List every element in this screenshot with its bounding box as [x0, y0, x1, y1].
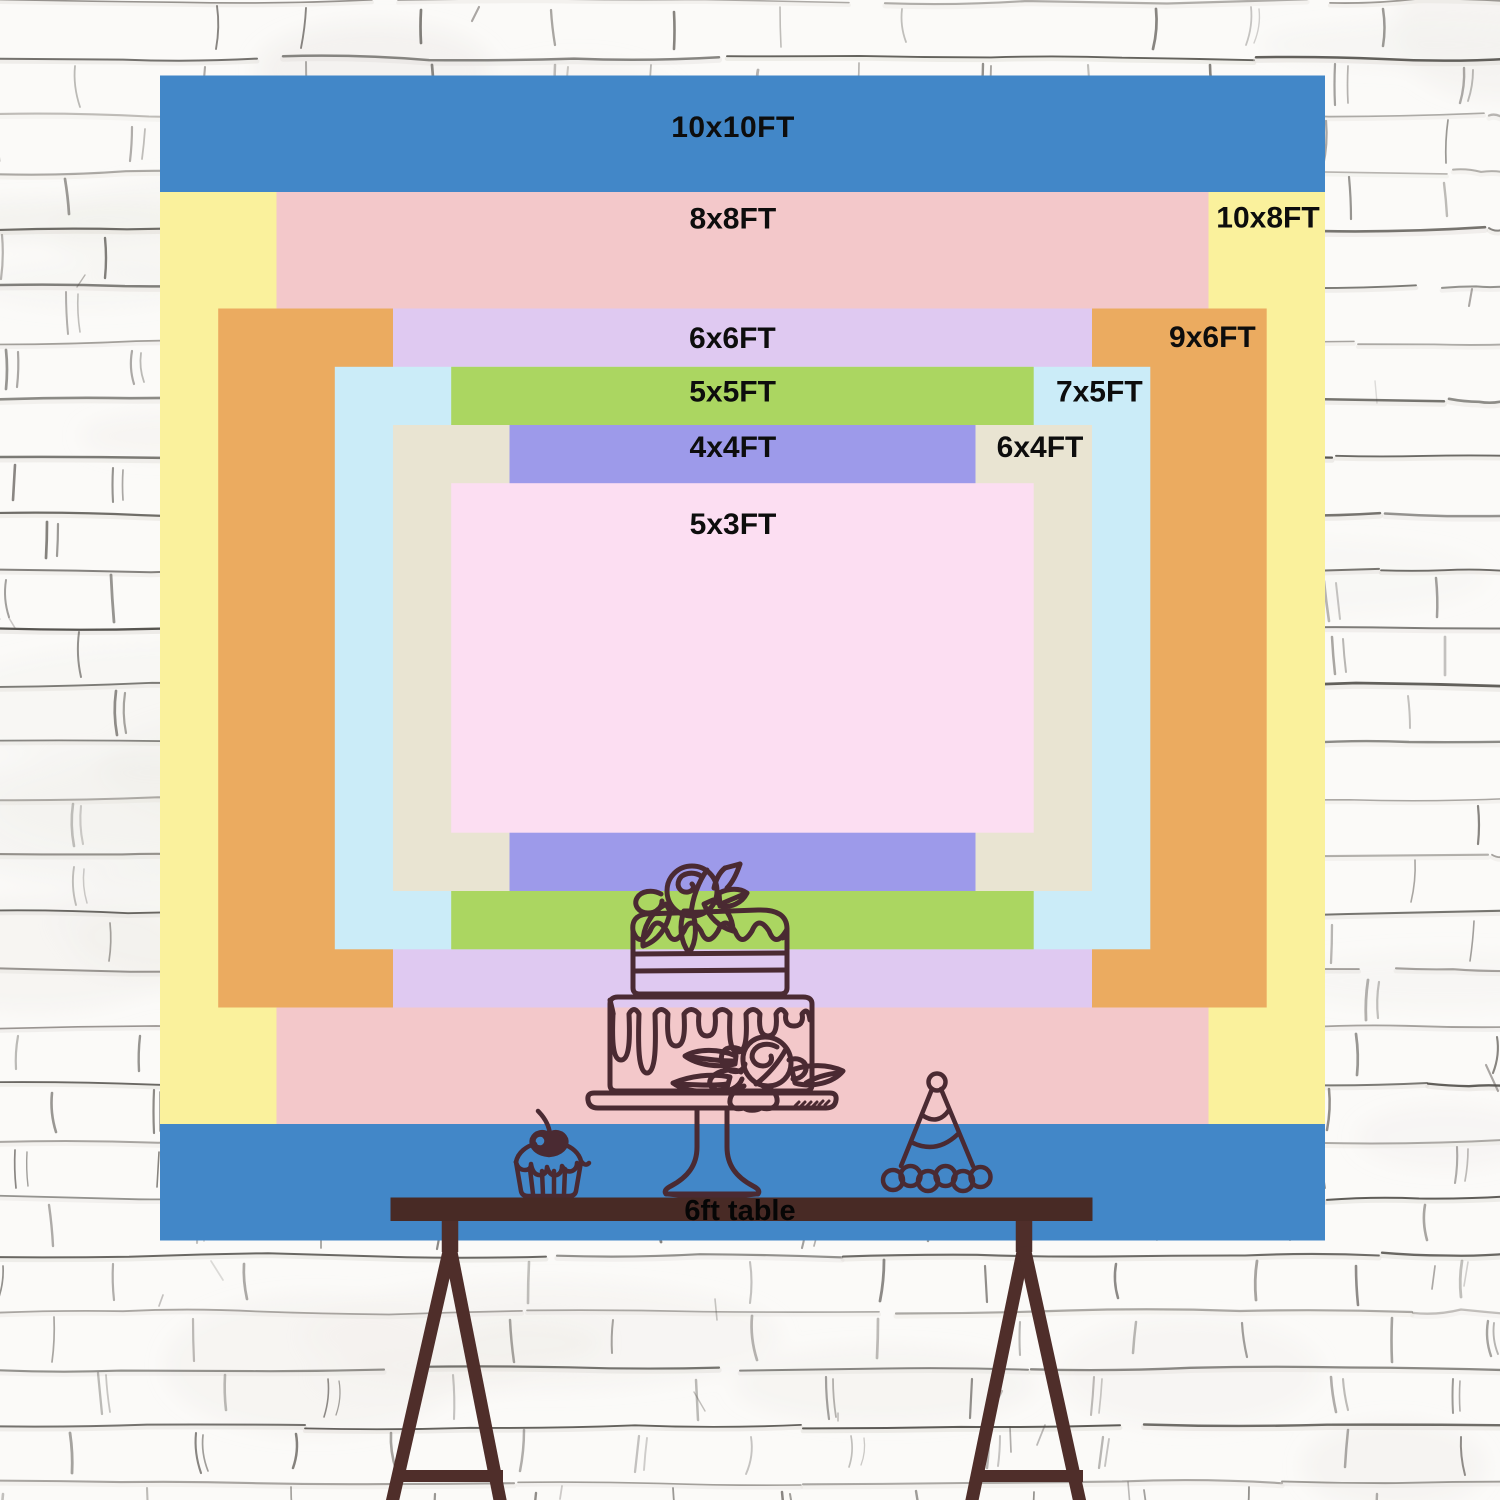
svg-text:5x3FT: 5x3FT	[690, 508, 777, 541]
svg-text:4x4FT: 4x4FT	[690, 431, 777, 464]
svg-text:9x6FT: 9x6FT	[1169, 321, 1256, 354]
svg-text:6x6FT: 6x6FT	[689, 322, 776, 355]
svg-text:7x5FT: 7x5FT	[1056, 376, 1143, 409]
svg-text:5x5FT: 5x5FT	[689, 376, 776, 409]
svg-text:6ft table: 6ft table	[684, 1195, 795, 1227]
svg-text:6x4FT: 6x4FT	[997, 431, 1084, 464]
svg-text:10x8FT: 10x8FT	[1216, 202, 1319, 235]
svg-text:10x10FT: 10x10FT	[671, 111, 795, 144]
svg-text:8x8FT: 8x8FT	[689, 202, 776, 235]
